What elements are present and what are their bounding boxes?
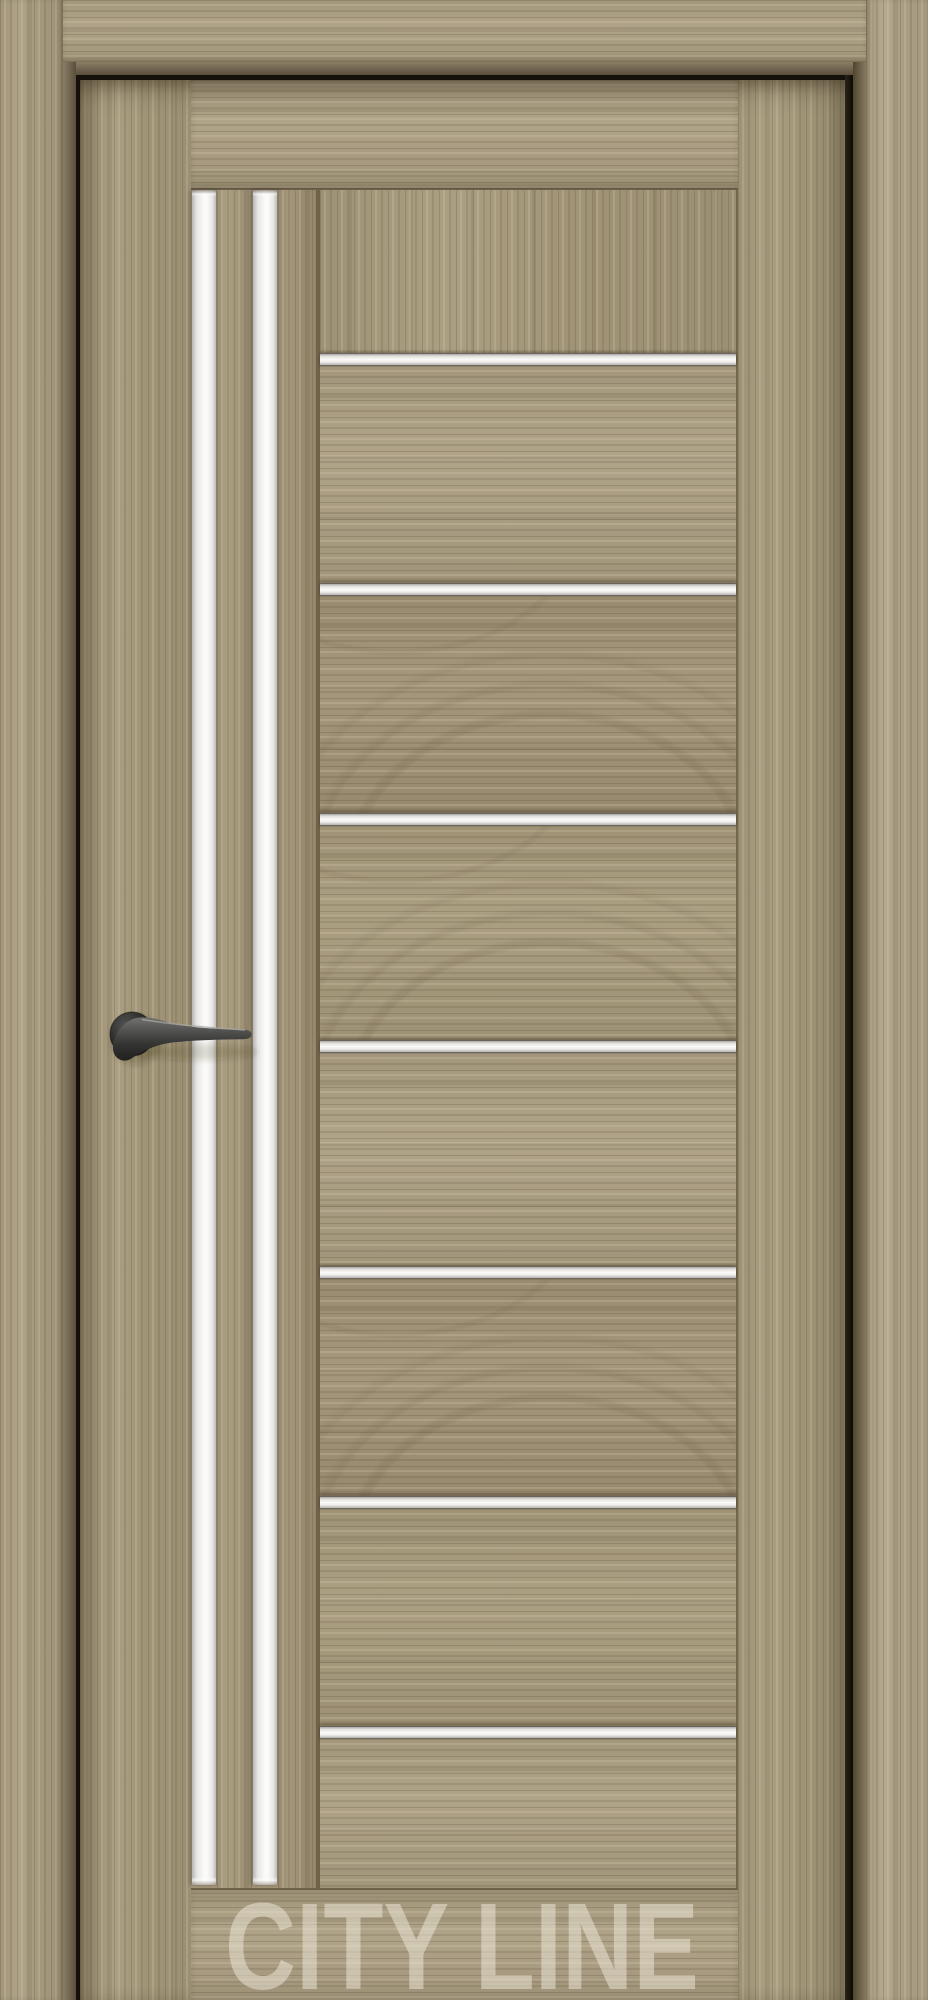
leaf-mid-stile (278, 190, 318, 1888)
door-handle (96, 996, 260, 1076)
horizontal-glass-insert (320, 353, 736, 366)
horizontal-glass-insert (320, 813, 736, 826)
panel-section (320, 190, 736, 353)
panel-section (320, 1509, 736, 1726)
horizontal-glass-insert (320, 583, 736, 596)
horizontal-glass-insert (320, 1496, 736, 1509)
door-frame-right-casing (866, 0, 928, 2000)
door-leaf: CITY LINE (80, 80, 845, 2000)
leaf-right-stile (738, 80, 845, 2000)
leaf-top-rail (191, 80, 738, 190)
panel-section (320, 1739, 736, 1888)
horizontal-glass-insert (320, 1726, 736, 1739)
frame-bevel-right (853, 62, 866, 2000)
horizontal-glass-insert (320, 1040, 736, 1053)
frame-reveal-right (845, 75, 853, 2000)
panel-section (320, 1279, 736, 1496)
panel-section (320, 1053, 736, 1266)
leaf-main-panel (318, 190, 738, 1888)
panel-section (320, 366, 736, 583)
frame-bevel-top (63, 62, 866, 75)
horizontal-glass-insert (320, 1266, 736, 1279)
leaf-bottom-rail: CITY LINE (191, 1888, 738, 2000)
door-product-photo: CITY LINE (0, 0, 928, 2000)
watermark-text: CITY LINE (225, 1902, 635, 1994)
door-frame-top-casing (63, 0, 866, 62)
panel-section (320, 596, 736, 813)
frame-bevel-left (63, 62, 76, 2000)
door-frame-left-casing (0, 0, 63, 2000)
panel-section (320, 826, 736, 1040)
